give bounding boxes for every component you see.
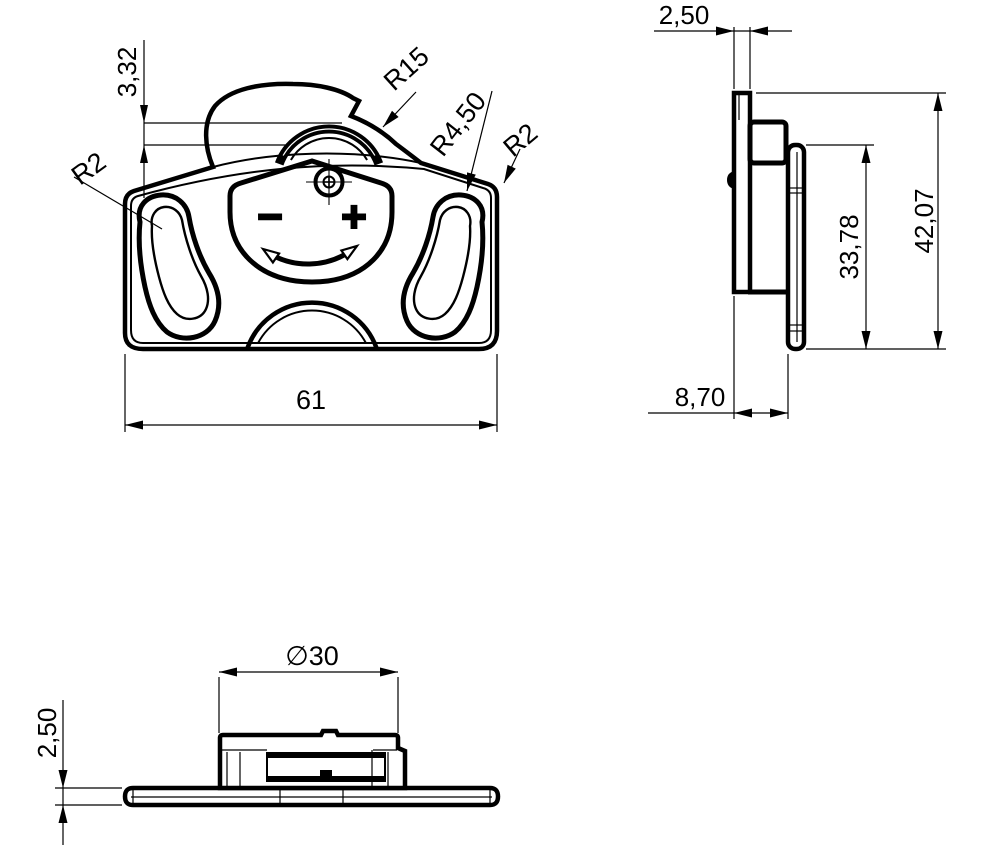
dim-61-text: 61: [296, 385, 326, 415]
side-clip-block: [750, 122, 786, 163]
dim-250-text: 2,50: [659, 0, 710, 30]
cad-drawing: − + 3,32: [0, 0, 999, 853]
disc-center-mark: [320, 770, 332, 776]
plus-symbol: +: [341, 193, 367, 242]
disc-edge-bottom: [267, 776, 385, 782]
drawing-background: [0, 0, 999, 853]
drawing-canvas: − + 3,32: [0, 0, 999, 853]
side-flange: [788, 145, 804, 349]
dim-870-text: 8,70: [675, 382, 726, 412]
side-plate-bar: [734, 93, 750, 292]
dim-3378-text: 33,78: [834, 214, 864, 279]
minus-symbol: −: [257, 193, 283, 242]
dim-b250-text: 2,50: [32, 708, 62, 759]
dim-332-text: 3,32: [112, 47, 142, 98]
disc-edge-top: [267, 752, 385, 758]
dim-d30-text: ∅30: [285, 641, 339, 671]
dim-4207-text: 42,07: [909, 188, 939, 253]
